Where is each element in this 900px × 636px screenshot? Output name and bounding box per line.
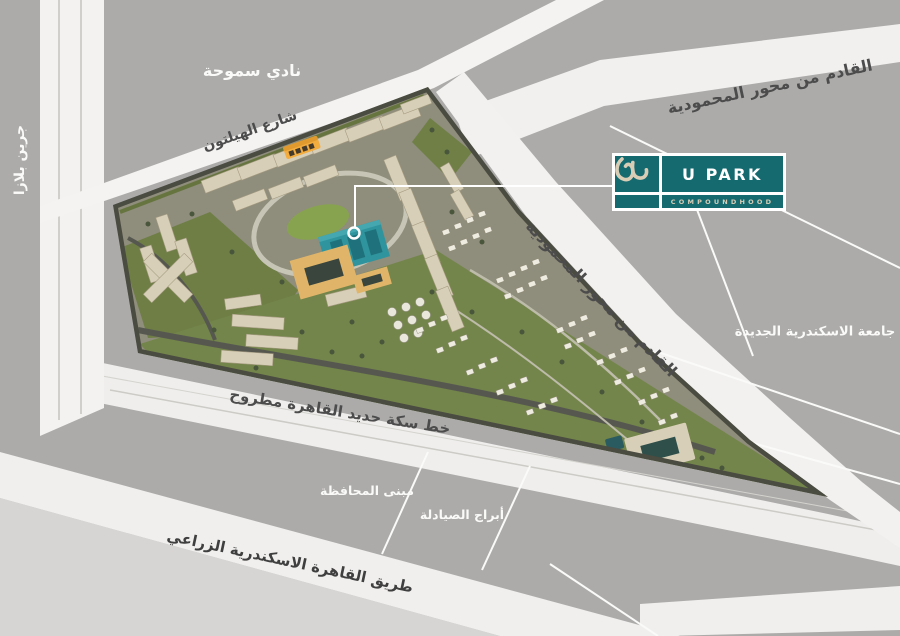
upark-monogram-icon bbox=[612, 153, 650, 183]
upark-logo-icon-cell bbox=[615, 156, 659, 192]
label-pharmacists-towers: أبراج الصيادلة bbox=[420, 509, 504, 522]
upark-logo-strip-cell bbox=[615, 195, 659, 208]
label-governorate-building: مبنى المحافظة bbox=[320, 485, 414, 498]
upark-logo-name-cell: U PARK bbox=[662, 156, 783, 192]
location-map: نادي سموحة جرين بلازا شارع الهيلتون القا… bbox=[0, 0, 900, 636]
upark-logo-tagline-cell: COMPOUNDHOOD bbox=[662, 195, 783, 208]
upark-logo-tagline: COMPOUNDHOOD bbox=[671, 198, 774, 206]
label-smouha-club: نادي سموحة bbox=[203, 63, 301, 79]
upark-logo-name: U PARK bbox=[682, 165, 763, 184]
label-green-plaza: جرين بلازا bbox=[13, 125, 27, 195]
label-new-alexandria-university: جامعة الاسكندرية الجديدة bbox=[735, 326, 895, 339]
upark-logo: U PARK COMPOUNDHOOD bbox=[612, 153, 786, 211]
